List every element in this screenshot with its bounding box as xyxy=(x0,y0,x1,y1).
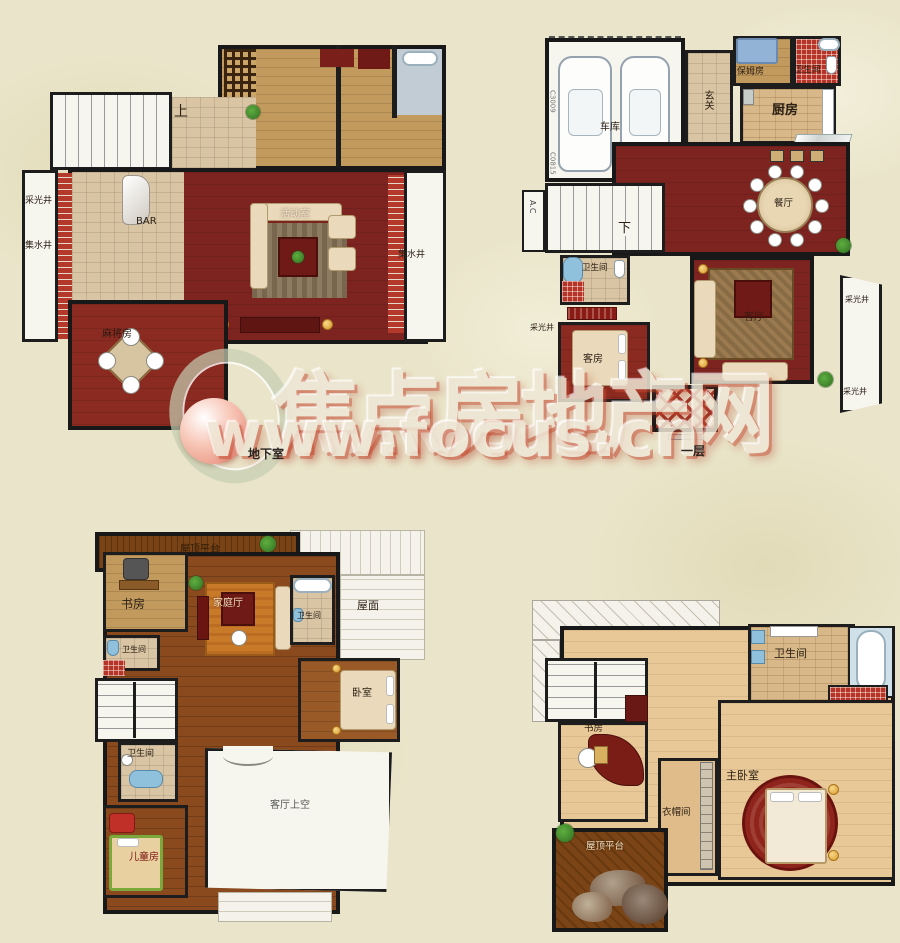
room-label-study: 书房 xyxy=(584,724,603,734)
room-label-bath: 卫生间 xyxy=(774,648,807,660)
floor-caption-floor1: 一层 xyxy=(681,442,705,459)
pillow xyxy=(798,792,822,802)
window-code-lower: C0815 xyxy=(548,152,556,175)
pillow xyxy=(386,704,394,724)
vase-dot xyxy=(231,630,247,646)
chair-dot xyxy=(790,165,804,179)
car-icon xyxy=(558,56,612,172)
room-label-mahjong: 麻将房 xyxy=(102,329,132,340)
pillow xyxy=(386,676,394,696)
toilet-icon xyxy=(107,640,119,656)
floorplan-sheet: 上 BAR 活动室 采光井 集水井 集水井 麻将房 地下室 xyxy=(0,0,900,943)
room-label-terrace: 屋顶平台 xyxy=(180,544,220,555)
floorplan-floor2: 屋面 屋顶平台 书房 家庭厅 卫生间 卫生间 卧室 卫生 xyxy=(85,528,425,926)
stairs xyxy=(95,678,178,742)
lamp-icon xyxy=(332,664,341,673)
chair-dot xyxy=(98,352,116,370)
chair-dot xyxy=(790,233,804,247)
corridor-rug xyxy=(567,307,617,320)
room-label-family: 家庭厅 xyxy=(213,598,243,609)
plant-icon xyxy=(246,105,260,119)
room-label-stairs-up: 上 xyxy=(174,105,188,120)
room-label-living: 客厅 xyxy=(744,312,764,323)
floorplan-floor3: 卫生间 书房 衣帽间 主卧室 屋顶平台 xyxy=(530,598,900,940)
desk-monitor xyxy=(594,746,608,764)
toilet-icon xyxy=(614,260,625,278)
mosaic-floor xyxy=(103,660,125,676)
room-label-study: 书房 xyxy=(121,598,145,611)
bathtub-icon xyxy=(563,257,583,283)
stairs-down xyxy=(545,183,665,253)
room-label-kitchen: 厨房 xyxy=(772,104,798,118)
room-label-ac: A.C xyxy=(527,200,536,213)
chair-dot xyxy=(750,178,764,192)
lamp-icon xyxy=(828,850,839,861)
chair-dot xyxy=(815,199,829,213)
room-label-light-well: 采光井 xyxy=(25,197,52,207)
cabinet-red xyxy=(358,49,390,69)
fridge-icon xyxy=(743,89,754,105)
room-label-activity: 活动室 xyxy=(280,209,310,220)
bathtub-icon xyxy=(856,630,886,692)
garage-door-dashed xyxy=(549,36,681,38)
room-label-bath-lower: 卫生间 xyxy=(127,750,154,760)
lower-deck xyxy=(218,892,332,922)
sideboard xyxy=(770,150,784,162)
window-code-upper: C3009 xyxy=(548,90,556,113)
car-roof xyxy=(568,89,603,136)
sofa xyxy=(250,203,268,289)
room-label-bar: BAR xyxy=(136,216,157,227)
room-label-bedroom: 卧室 xyxy=(352,688,372,699)
sideboard xyxy=(790,150,804,162)
lamp-icon xyxy=(322,319,333,330)
cabinet-red xyxy=(320,49,354,67)
bathtub-icon xyxy=(293,578,332,593)
toilet-icon xyxy=(826,56,837,74)
room-label-nanny: 保姆房 xyxy=(737,68,764,78)
car-roof xyxy=(629,89,661,136)
chair-dot xyxy=(768,165,782,179)
desk xyxy=(119,580,159,590)
mosaic-floor xyxy=(562,281,584,302)
bed xyxy=(736,38,778,64)
room-label-garage: 车库 xyxy=(600,122,620,133)
stairs-up xyxy=(50,92,172,170)
rock xyxy=(622,884,668,924)
room-label-light-well-right: 采光井 xyxy=(845,296,869,305)
lamp-icon xyxy=(332,726,341,735)
balcony-arc xyxy=(223,746,273,766)
dresser-red xyxy=(109,813,135,833)
bathtub-icon xyxy=(818,38,840,51)
chair-dot xyxy=(743,199,757,213)
room-label-closet: 衣帽间 xyxy=(662,808,691,818)
stair-rail xyxy=(594,662,597,718)
room-label-light-well-left: 采光井 xyxy=(530,324,554,333)
wardrobe-shelves xyxy=(700,762,713,870)
sofa xyxy=(275,586,291,650)
pillow xyxy=(117,838,139,847)
room-label-bath-left: 卫生间 xyxy=(122,646,146,655)
room-label-bath-top: 卫生间 xyxy=(795,66,821,75)
closet-cabinet xyxy=(625,695,648,722)
sink-icon xyxy=(751,650,765,664)
roof-surface xyxy=(340,575,425,660)
room-label-void: 客厅上空 xyxy=(270,800,310,811)
room-label-sump-right: 集水井 xyxy=(398,251,425,261)
sideboard xyxy=(810,150,824,162)
armchair xyxy=(328,247,356,271)
stair-rail xyxy=(133,682,136,738)
floor-caption-basement: 地下室 xyxy=(248,445,284,462)
room-label-terrace: 屋顶平台 xyxy=(586,842,624,852)
chair-dot xyxy=(122,376,140,394)
bathtub-icon xyxy=(402,51,438,66)
pillow xyxy=(770,792,794,802)
plant-icon xyxy=(260,536,276,552)
room-label-bath-mid: 卫生间 xyxy=(582,264,608,273)
chair-dot xyxy=(808,178,822,192)
tv-cabinet xyxy=(240,317,320,333)
plant-icon xyxy=(556,824,574,842)
room-label-master: 主卧室 xyxy=(726,770,759,782)
room-label-light-well-right2: 采光井 xyxy=(843,388,867,397)
room-label-stairs-down: 下 xyxy=(616,222,633,236)
lamp-icon xyxy=(828,784,839,795)
room-label-bath-right: 卫生间 xyxy=(297,612,321,621)
chair-dot xyxy=(808,220,822,234)
armchair xyxy=(328,215,356,239)
plant-icon xyxy=(836,238,851,253)
plant-icon xyxy=(818,372,833,387)
room-label-children: 儿童房 xyxy=(129,852,159,863)
lamp-icon xyxy=(698,264,708,274)
desk-monitor xyxy=(123,558,149,580)
living-void xyxy=(205,748,392,892)
rock xyxy=(572,892,612,922)
chair-dot xyxy=(768,233,782,247)
plant-icon xyxy=(189,576,203,590)
room-label-entry: 玄关 xyxy=(702,90,713,110)
tv-cabinet xyxy=(197,596,209,640)
counter xyxy=(770,626,818,637)
room-label-sump-left: 集水井 xyxy=(25,242,52,252)
room-label-roof: 屋面 xyxy=(357,600,379,612)
bathtub-icon xyxy=(129,770,163,788)
room-label-dining: 餐厅 xyxy=(774,199,793,209)
chair-dot xyxy=(750,220,764,234)
plant-icon xyxy=(292,251,304,263)
sink-icon xyxy=(751,630,765,644)
